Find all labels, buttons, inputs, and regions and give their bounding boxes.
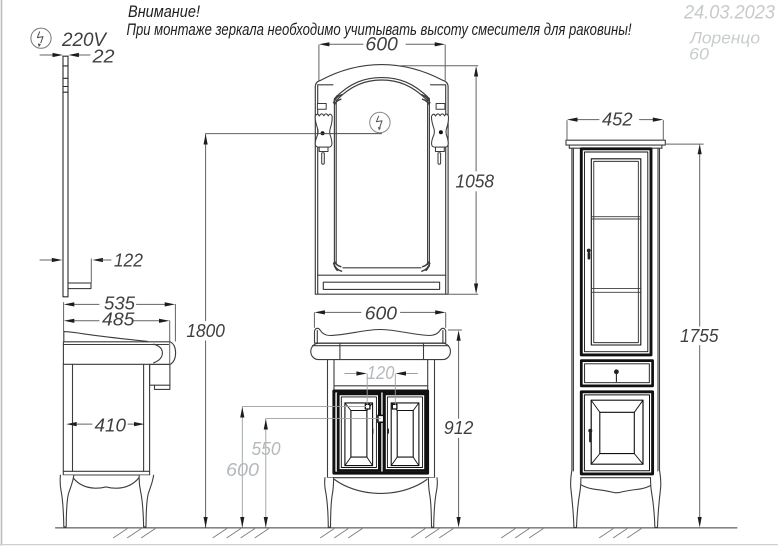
svg-text:120: 120 <box>367 363 395 383</box>
svg-text:Внимание!: Внимание! <box>128 3 200 21</box>
svg-text:1058: 1058 <box>455 171 494 191</box>
svg-text:485: 485 <box>102 310 136 330</box>
svg-text:550: 550 <box>252 439 281 459</box>
svg-text:600: 600 <box>365 35 398 56</box>
svg-text:22: 22 <box>91 46 114 66</box>
svg-text:24.03.2023: 24.03.2023 <box>683 2 775 24</box>
svg-text:1755: 1755 <box>680 326 719 346</box>
svg-text:410: 410 <box>95 416 127 436</box>
svg-text:1800: 1800 <box>186 321 225 341</box>
svg-text:60: 60 <box>689 46 710 64</box>
svg-text:452: 452 <box>602 109 633 129</box>
svg-text:600: 600 <box>226 460 259 480</box>
svg-text:912: 912 <box>444 418 474 438</box>
svg-text:122: 122 <box>114 251 143 271</box>
svg-text:600: 600 <box>365 303 397 323</box>
